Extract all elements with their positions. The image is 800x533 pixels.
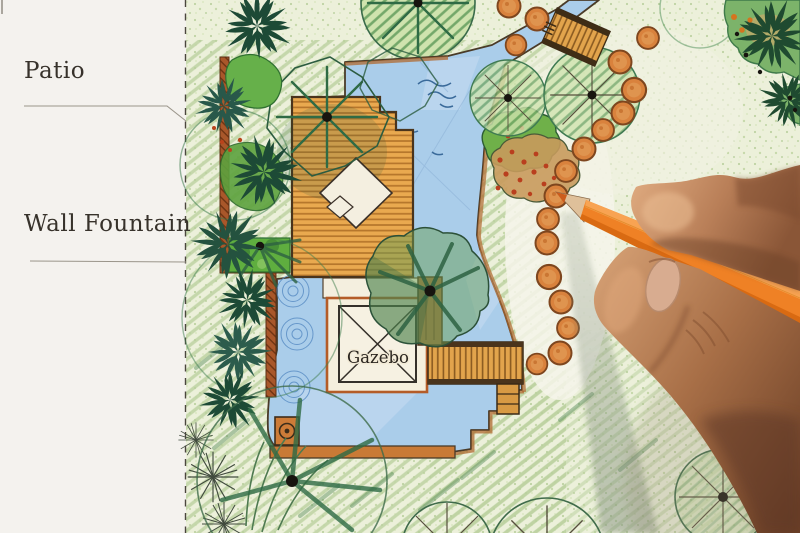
- stepping-stone: [573, 138, 596, 161]
- stepping-stone: [527, 354, 548, 375]
- boardwalk-steps-landing: [497, 384, 519, 414]
- stepping-stone: [536, 232, 559, 255]
- stepping-stone: [537, 208, 559, 230]
- stepping-stone: [622, 78, 646, 102]
- wall-fountain-label: Wall Fountain: [24, 211, 191, 237]
- plan-drawing: Patio Wall Fountain: [0, 0, 800, 533]
- gazebo-label: Gazebo: [347, 348, 409, 367]
- boardwalk-deck: [428, 342, 523, 384]
- stepping-stone: [498, 0, 521, 18]
- stepping-stone: [537, 265, 561, 289]
- stepping-stone: [592, 119, 614, 141]
- stepping-stone: [612, 102, 635, 125]
- stepping-stone: [637, 27, 659, 49]
- stepping-stone: [549, 342, 572, 365]
- patio-label: Patio: [24, 58, 85, 84]
- stepping-stone: [609, 51, 632, 74]
- tree-center-dot: [425, 286, 436, 297]
- stepping-stone: [506, 35, 527, 56]
- fruit-tree-1: [470, 60, 546, 136]
- gazebo-tree: [366, 228, 489, 347]
- fingertip-highlight: [642, 192, 694, 232]
- tree-center-dot: [286, 475, 298, 487]
- stepping-stone: [550, 291, 573, 314]
- stepping-stone: [555, 160, 577, 182]
- tree-center-dot: [322, 112, 332, 122]
- landscape-plan-photo: Patio Wall Fountain: [0, 0, 800, 533]
